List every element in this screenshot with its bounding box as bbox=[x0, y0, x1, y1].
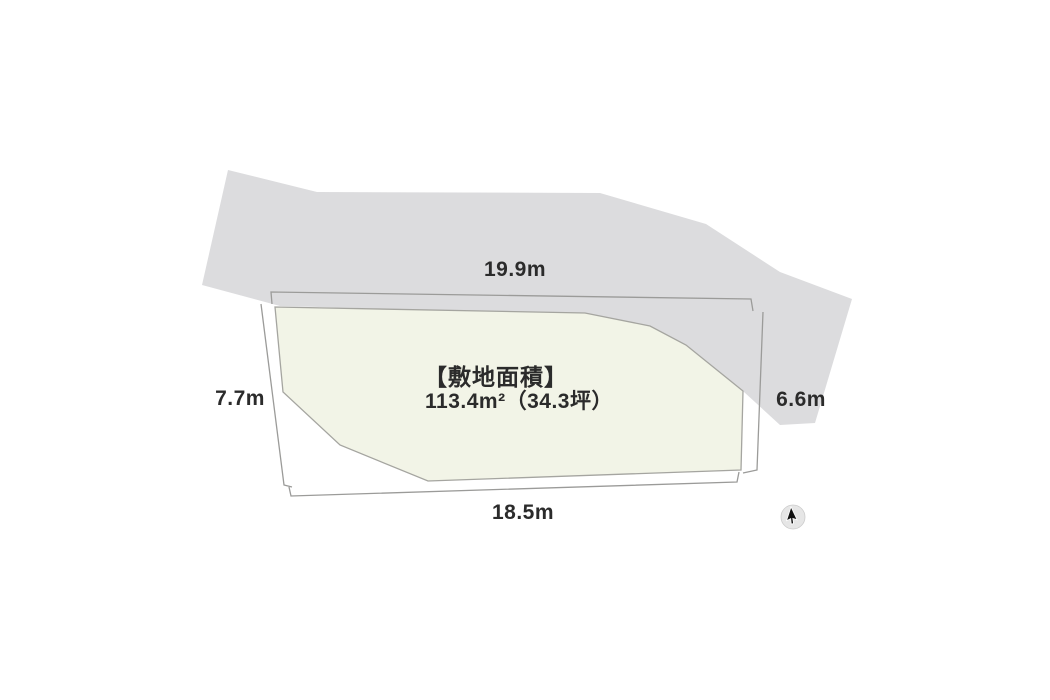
land-plot-diagram: 19.9m 7.7m 6.6m 18.5m 【敷地面積】 113.4m²（34.… bbox=[0, 0, 1050, 700]
dimension-label-bottom: 18.5m bbox=[492, 501, 554, 524]
dimension-label-top: 19.9m bbox=[484, 258, 546, 281]
site-area-title: 【敷地面積】 bbox=[424, 364, 568, 390]
dimension-label-right: 6.6m bbox=[776, 388, 826, 411]
diagram-canvas: 19.9m 7.7m 6.6m 18.5m 【敷地面積】 113.4m²（34.… bbox=[0, 0, 1050, 700]
dimension-label-left: 7.7m bbox=[215, 387, 265, 410]
mouse-cursor-icon bbox=[781, 505, 805, 529]
site-area-value: 113.4m²（34.3坪） bbox=[425, 389, 613, 413]
